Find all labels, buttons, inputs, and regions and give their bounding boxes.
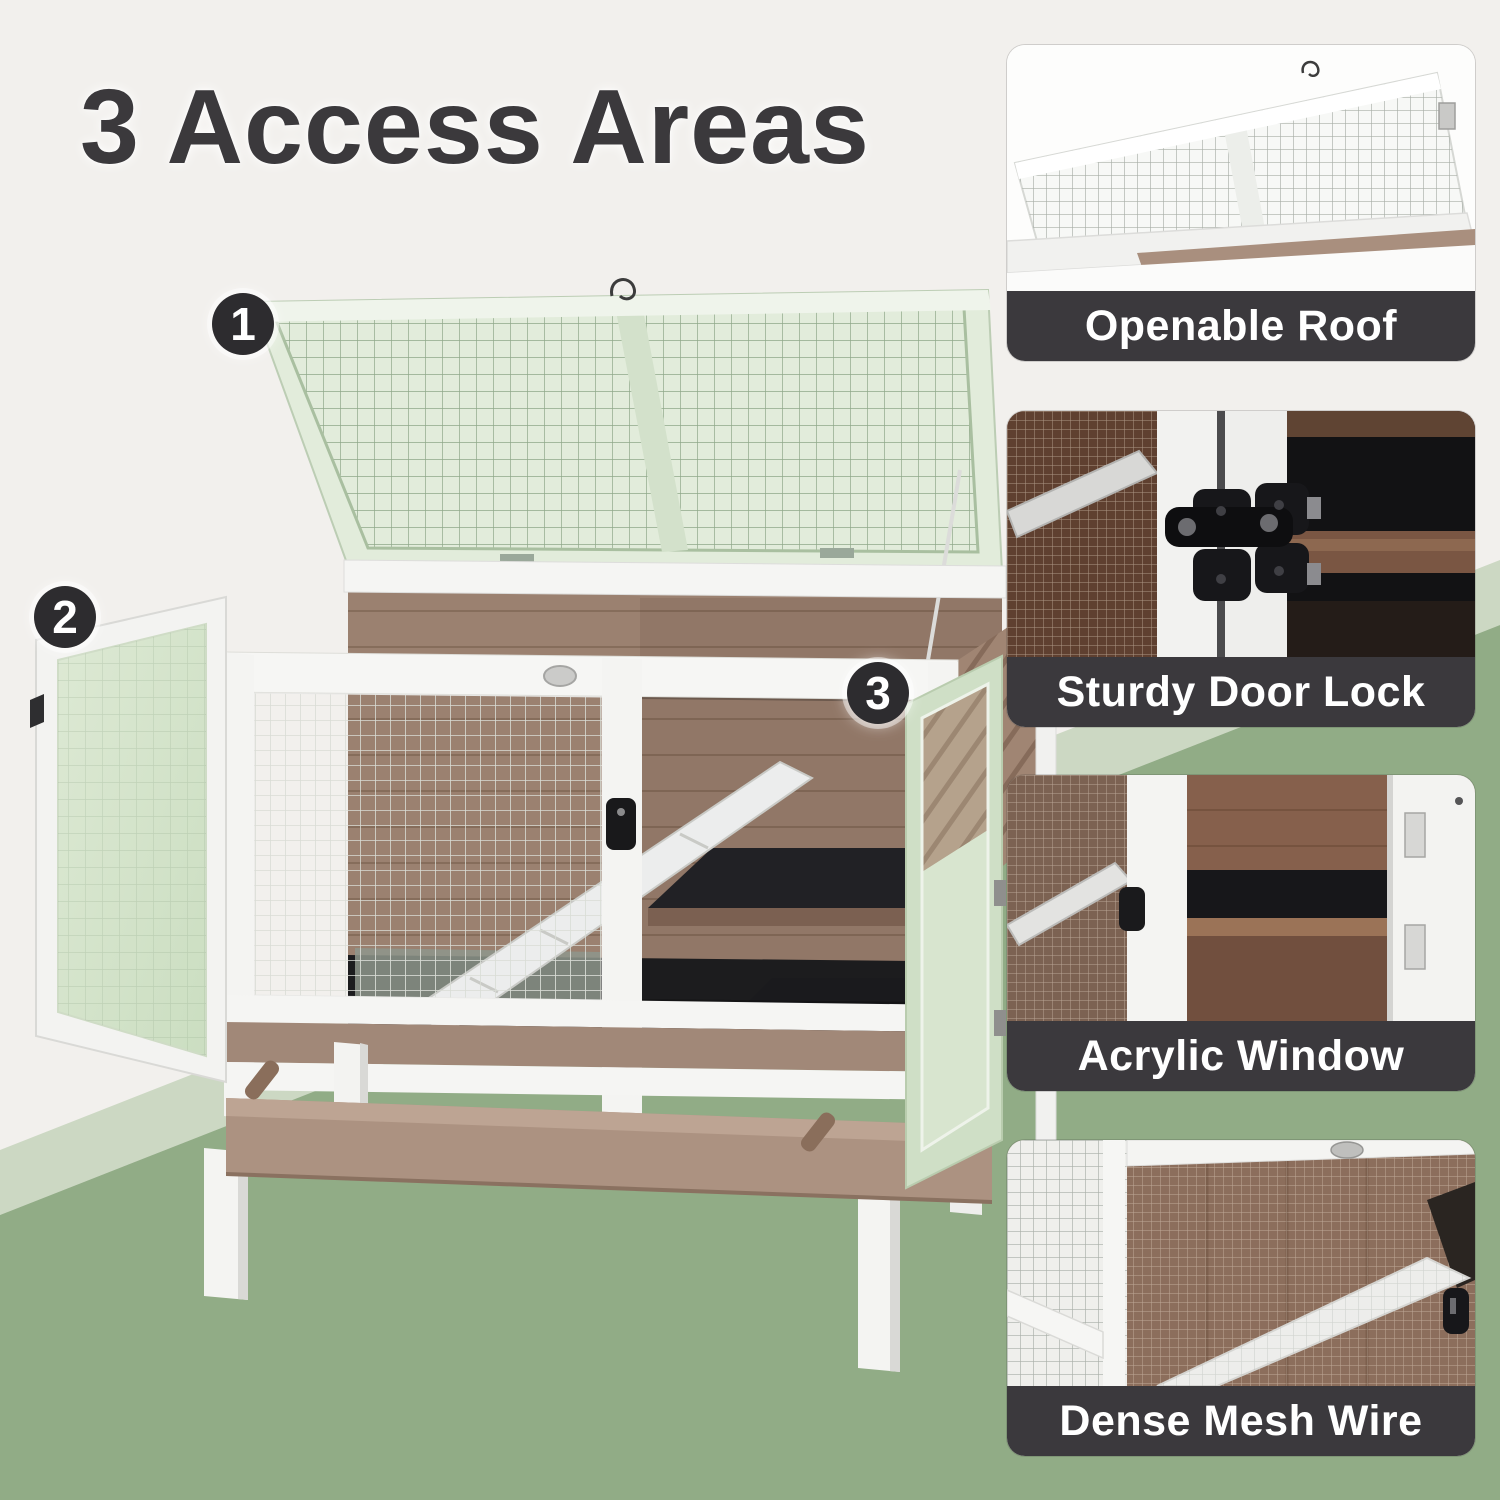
- hinge-icon: [1405, 925, 1425, 969]
- product-infographic: 3 Access Areas 1 2 3 Openable Roof: [0, 0, 1500, 1500]
- door-hinge-icon: [994, 880, 1006, 906]
- feature-card-acrylic-window: Acrylic Window: [1007, 775, 1475, 1091]
- card-photo-acrylic-window: [1007, 775, 1475, 1021]
- card-caption: Openable Roof: [1007, 291, 1475, 361]
- feature-card-dense-mesh-wire: Dense Mesh Wire: [1007, 1140, 1475, 1456]
- card-caption: Sturdy Door Lock: [1007, 657, 1475, 727]
- callout-badge-3: 3: [847, 662, 909, 724]
- card-caption: Acrylic Window: [1007, 1021, 1475, 1091]
- feature-card-openable-roof: Openable Roof: [1007, 45, 1475, 361]
- front-mesh-pane: [254, 693, 602, 1000]
- badge-number: 1: [230, 297, 256, 351]
- door-hinge-icon: [994, 1010, 1006, 1036]
- card-photo-openable-roof: [1007, 45, 1475, 291]
- card-caption: Dense Mesh Wire: [1007, 1386, 1475, 1456]
- page-title: 3 Access Areas: [80, 72, 870, 183]
- door-latch-icon: [1119, 887, 1145, 931]
- door-latch-icon: [606, 798, 636, 850]
- left-door-open: [30, 597, 226, 1082]
- hinge-icon: [1405, 813, 1425, 857]
- right-door-open: [906, 656, 1006, 1188]
- latch-plate-icon: [544, 666, 576, 686]
- feature-card-sturdy-door-lock: Sturdy Door Lock: [1007, 411, 1475, 727]
- callout-badge-2: 2: [34, 586, 96, 648]
- latch-plate-icon: [1331, 1142, 1363, 1158]
- card-photo-sturdy-door-lock: [1007, 411, 1475, 657]
- callout-badge-1: 1: [212, 293, 274, 355]
- badge-number: 2: [52, 590, 78, 644]
- card-photo-dense-mesh-wire: [1007, 1140, 1475, 1386]
- badge-number: 3: [865, 666, 891, 720]
